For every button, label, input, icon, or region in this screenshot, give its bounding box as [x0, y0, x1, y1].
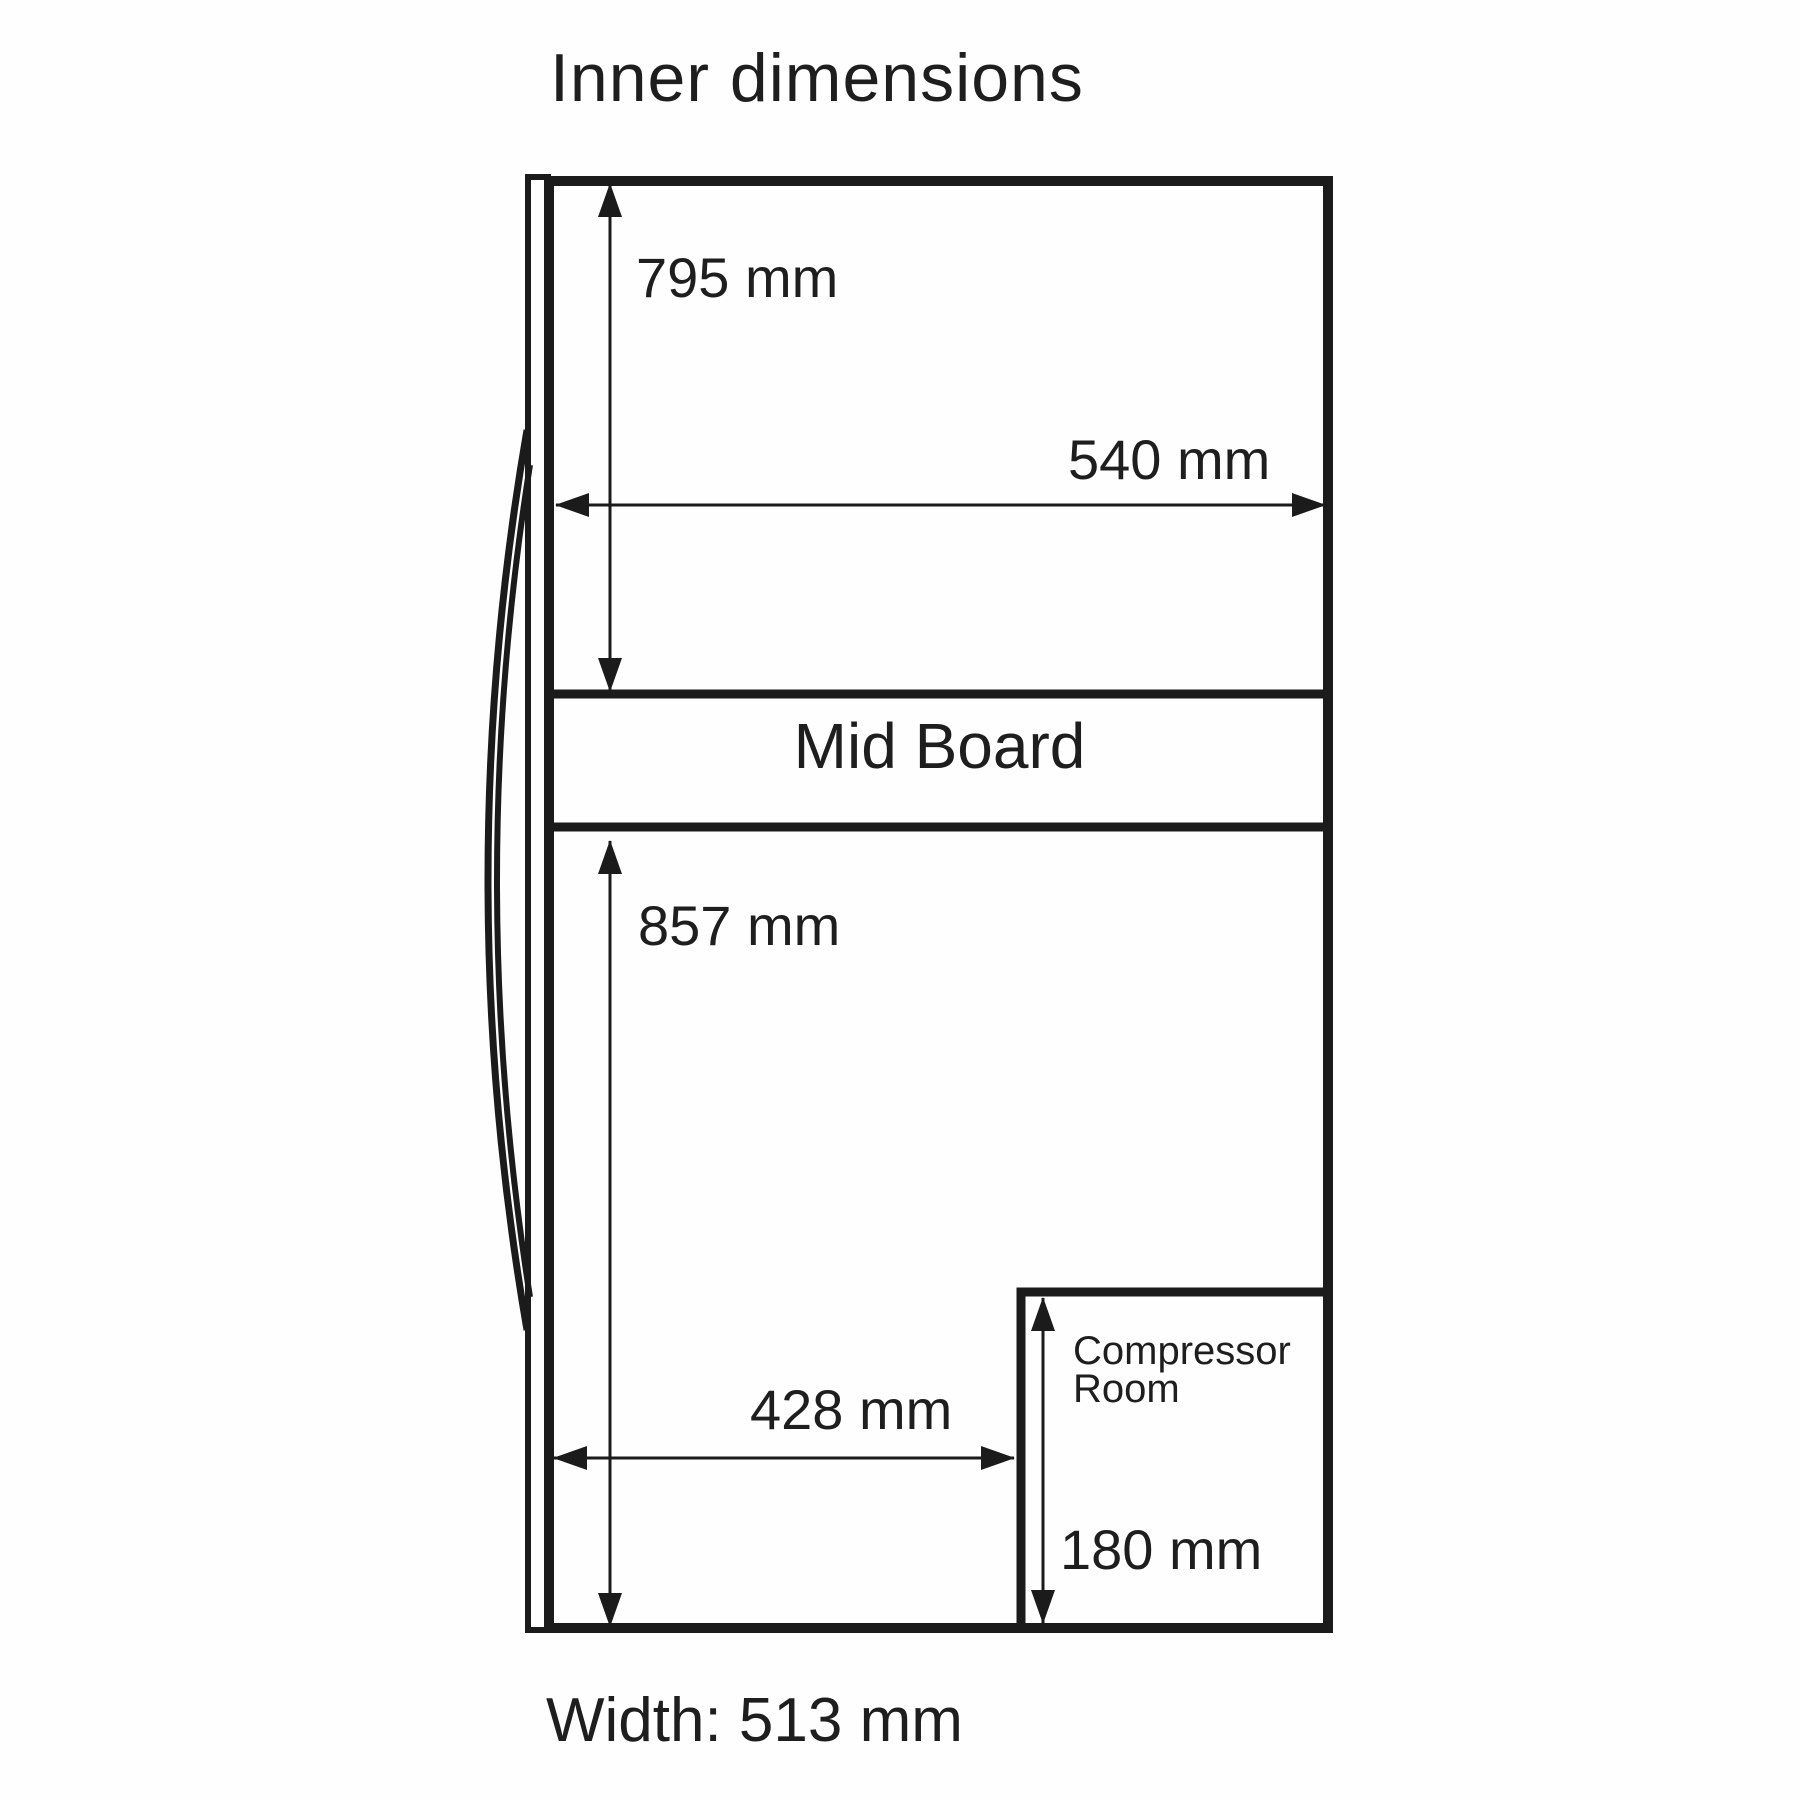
door-handle-arc-outer [488, 430, 527, 1330]
compressor-room-label-line1: Compressor [1073, 1332, 1291, 1370]
compressor-room-label-line2: Room [1073, 1370, 1291, 1408]
dim-label-857: 857 mm [638, 898, 840, 954]
mid-board-label: Mid Board [547, 714, 1332, 778]
inner-dimensions-diagram: Inner dimensions 795 mm 540 mm Mid Board… [0, 0, 1800, 1800]
compressor-room-label: Compressor Room [1073, 1332, 1291, 1408]
dim-label-540: 540 mm [1068, 432, 1270, 488]
dim-label-180: 180 mm [1060, 1522, 1262, 1578]
overall-width-label: Width: 513 mm [546, 1690, 963, 1752]
cabinet-line-drawing [0, 0, 1800, 1800]
dim-label-795: 795 mm [636, 250, 838, 306]
dim-label-428: 428 mm [750, 1382, 952, 1438]
diagram-title: Inner dimensions [550, 44, 1084, 112]
